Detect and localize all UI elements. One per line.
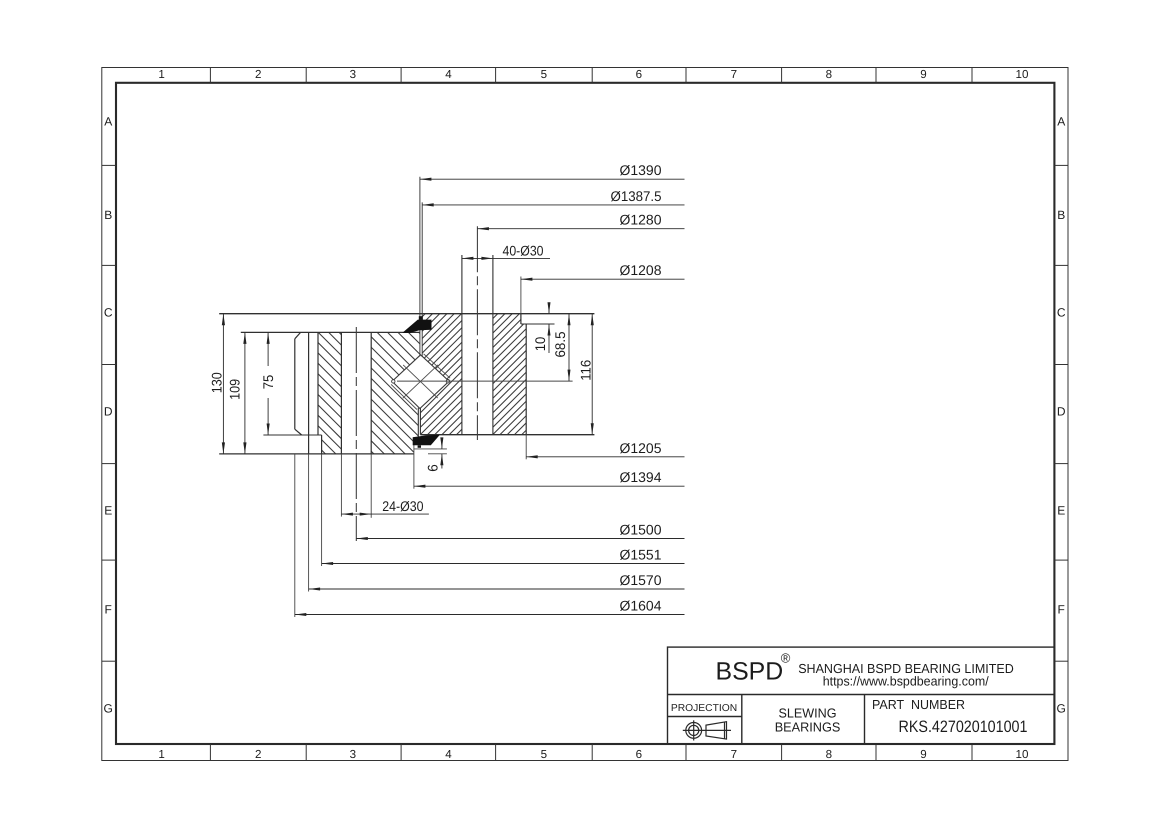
- svg-text:C: C: [1057, 305, 1066, 319]
- svg-text:Ø1390: Ø1390: [620, 162, 662, 178]
- svg-text:109: 109: [226, 379, 242, 400]
- svg-text:RKS.427020101001: RKS.427020101001: [899, 718, 1028, 736]
- svg-text:Ø1551: Ø1551: [620, 547, 662, 563]
- svg-text:10: 10: [1016, 68, 1029, 81]
- svg-text:3: 3: [350, 748, 356, 761]
- svg-text:24-Ø30: 24-Ø30: [382, 498, 423, 514]
- svg-text:6: 6: [425, 464, 441, 472]
- svg-text:6: 6: [636, 748, 642, 761]
- svg-text:8: 8: [826, 748, 832, 761]
- svg-text:Ø1394: Ø1394: [620, 469, 662, 485]
- svg-text:G: G: [104, 701, 113, 715]
- svg-text:PART NUMBER: PART NUMBER: [872, 697, 965, 712]
- svg-text:Ø1208: Ø1208: [620, 262, 662, 278]
- svg-text:Ø1280: Ø1280: [620, 212, 662, 228]
- svg-text:7: 7: [731, 68, 737, 81]
- svg-text:Ø1500: Ø1500: [620, 522, 662, 538]
- svg-text:3: 3: [350, 68, 356, 81]
- svg-text:https://www.bspdbearing.com/: https://www.bspdbearing.com/: [823, 674, 989, 689]
- svg-text:B: B: [1057, 208, 1065, 222]
- svg-text:C: C: [104, 305, 113, 319]
- svg-text:Ø1387.5: Ø1387.5: [611, 188, 662, 204]
- svg-text:A: A: [1057, 114, 1065, 128]
- svg-text:68.5: 68.5: [552, 331, 568, 357]
- svg-text:E: E: [1057, 503, 1065, 517]
- svg-text:2: 2: [255, 68, 261, 81]
- svg-text:B: B: [104, 208, 112, 222]
- svg-text:5: 5: [541, 68, 547, 81]
- svg-text:40-Ø30: 40-Ø30: [503, 243, 544, 259]
- svg-text:4: 4: [445, 748, 452, 761]
- svg-text:Ø1205: Ø1205: [620, 440, 662, 456]
- svg-text:7: 7: [731, 748, 737, 761]
- svg-text:BEARINGS: BEARINGS: [775, 720, 841, 735]
- svg-text:5: 5: [541, 748, 547, 761]
- svg-text:A: A: [104, 114, 112, 128]
- svg-text:2: 2: [255, 748, 261, 761]
- svg-text:Ø1570: Ø1570: [620, 572, 662, 588]
- svg-text:116: 116: [577, 360, 593, 381]
- svg-text:1: 1: [158, 748, 164, 761]
- svg-text:10: 10: [532, 337, 548, 352]
- svg-text:D: D: [104, 404, 113, 418]
- svg-text:130: 130: [209, 372, 225, 393]
- svg-text:F: F: [105, 602, 112, 616]
- svg-text:9: 9: [920, 68, 926, 81]
- svg-text:G: G: [1057, 701, 1066, 715]
- svg-text:BSPD: BSPD: [716, 658, 784, 686]
- svg-text:4: 4: [445, 68, 452, 81]
- svg-text:D: D: [1057, 404, 1066, 418]
- svg-text:SLEWING: SLEWING: [779, 705, 837, 720]
- svg-text:10: 10: [1016, 748, 1029, 761]
- svg-text:E: E: [104, 503, 112, 517]
- svg-text:9: 9: [920, 748, 926, 761]
- svg-text:®: ®: [781, 651, 791, 666]
- svg-text:8: 8: [826, 68, 832, 81]
- svg-text:1: 1: [158, 68, 164, 81]
- svg-text:F: F: [1058, 602, 1065, 616]
- svg-text:75: 75: [260, 375, 276, 390]
- svg-text:PROJECTION: PROJECTION: [671, 703, 737, 714]
- svg-text:Ø1604: Ø1604: [620, 598, 662, 614]
- svg-text:6: 6: [636, 68, 642, 81]
